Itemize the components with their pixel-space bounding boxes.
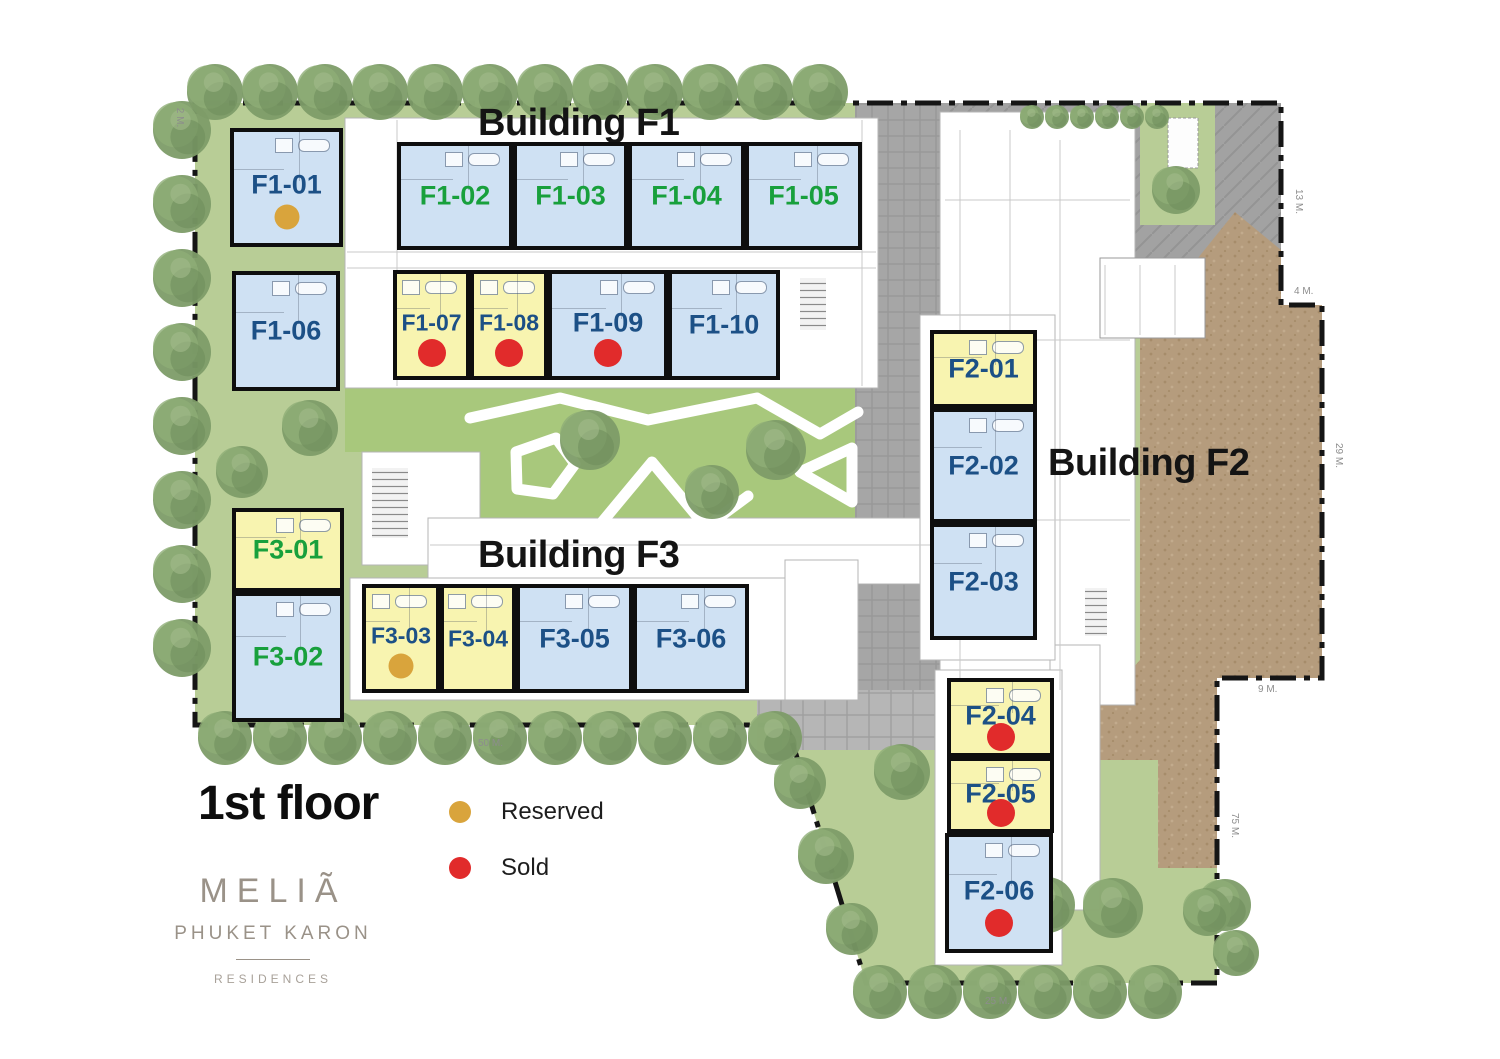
unit-F2-06: F2-06 xyxy=(945,833,1053,953)
reserved-dot-icon xyxy=(449,801,471,823)
bathroom-icon xyxy=(681,594,699,609)
bathroom-icon xyxy=(445,152,463,167)
bathtub-icon xyxy=(700,153,732,166)
bathroom-icon xyxy=(448,594,466,609)
wall-line xyxy=(236,636,286,637)
brand-division: RESIDENCES xyxy=(168,972,378,986)
tree-icon xyxy=(1045,105,1069,129)
tree-icon xyxy=(748,711,802,765)
dimension-label: 50 M. xyxy=(478,738,503,749)
tree-icon xyxy=(153,545,211,603)
bathroom-icon xyxy=(560,152,578,167)
tree-icon xyxy=(153,249,211,307)
tree-icon xyxy=(297,64,353,120)
unit-label: F1-07 xyxy=(401,309,461,336)
tree-icon xyxy=(1120,105,1144,129)
tree-icon xyxy=(282,400,338,456)
reserved-dot-icon xyxy=(389,653,414,678)
unit-label: F2-01 xyxy=(948,354,1019,385)
sold-dot-icon xyxy=(495,339,523,367)
tree-icon xyxy=(1020,105,1044,129)
dimension-label: 75 M. xyxy=(1229,813,1240,838)
bathroom-icon xyxy=(677,152,695,167)
bathroom-icon xyxy=(969,533,987,548)
unit-F2-05: F2-05 xyxy=(947,757,1054,833)
bathtub-icon xyxy=(588,595,620,608)
wall-line xyxy=(934,563,982,564)
bathroom-icon xyxy=(969,418,987,433)
unit-label: F1-06 xyxy=(251,316,322,347)
tree-icon xyxy=(1070,105,1094,129)
wall-line xyxy=(444,621,477,622)
unit-label: F1-09 xyxy=(573,307,644,338)
unit-F2-03: F2-03 xyxy=(930,523,1037,640)
bathroom-icon xyxy=(600,280,618,295)
unit-label: F3-06 xyxy=(656,623,727,654)
dimension-label: 2 M. xyxy=(174,108,185,127)
dimension-label: 25 M. xyxy=(985,996,1010,1007)
tree-icon xyxy=(1095,105,1119,129)
unit-label: F2-03 xyxy=(948,566,1019,597)
unit-F1-10: F1-10 xyxy=(668,270,780,380)
tree-icon xyxy=(682,64,738,120)
bathtub-icon xyxy=(395,595,427,608)
dimension-label: 29 M. xyxy=(1333,443,1344,468)
legend-sold-row: Sold xyxy=(449,854,549,882)
bathtub-icon xyxy=(992,534,1024,547)
tree-icon xyxy=(1018,965,1072,1019)
dimension-label: 13 M. xyxy=(1293,189,1304,214)
tree-icon xyxy=(216,446,268,498)
tree-icon xyxy=(1145,105,1169,129)
bathtub-icon xyxy=(623,281,655,294)
bathroom-icon xyxy=(794,152,812,167)
tree-icon xyxy=(153,619,211,677)
bathtub-icon xyxy=(299,603,331,616)
wall-line xyxy=(934,447,982,448)
wall-line xyxy=(672,308,722,309)
bathtub-icon xyxy=(992,419,1024,432)
tree-icon xyxy=(560,410,620,470)
bathroom-icon xyxy=(712,280,730,295)
unit-label: F3-01 xyxy=(253,535,324,566)
unit-F2-04: F2-04 xyxy=(947,678,1054,757)
reserved-dot-icon xyxy=(274,205,299,230)
unit-label: F1-08 xyxy=(479,309,539,336)
floor-plan-canvas: Building F1 Building F2 Building F3 F1-0… xyxy=(0,0,1500,1059)
unit-label: F2-06 xyxy=(964,875,1035,906)
unit-F1-07: F1-07 xyxy=(393,270,470,380)
unit-label: F1-01 xyxy=(251,170,322,201)
tree-icon xyxy=(638,711,692,765)
tree-icon xyxy=(153,175,211,233)
tree-icon xyxy=(153,323,211,381)
tree-icon xyxy=(352,64,408,120)
bathtub-icon xyxy=(704,595,736,608)
bathtub-icon xyxy=(992,341,1024,354)
tree-icon xyxy=(737,64,793,120)
legend-reserved-label: Reserved xyxy=(501,798,604,826)
building-f2-title: Building F2 xyxy=(1048,442,1249,485)
unit-label: F1-05 xyxy=(768,181,839,212)
unit-label: F1-03 xyxy=(535,181,606,212)
tree-icon xyxy=(407,64,463,120)
unit-label: F2-02 xyxy=(948,450,1019,481)
tree-icon xyxy=(153,397,211,455)
unit-F1-09: F1-09 xyxy=(548,270,668,380)
tree-icon xyxy=(153,471,211,529)
unit-F1-08: F1-08 xyxy=(470,270,548,380)
brand-location: PHUKET KARON xyxy=(168,923,378,945)
dimension-label: 4 M. xyxy=(1294,286,1313,297)
unit-F3-03: F3-03 xyxy=(362,584,440,693)
sold-dot-icon xyxy=(594,339,622,367)
unit-label: F3-02 xyxy=(253,642,324,673)
unit-F2-02: F2-02 xyxy=(930,408,1037,523)
unit-F3-02: F3-02 xyxy=(232,592,344,722)
tree-icon xyxy=(242,64,298,120)
bathtub-icon xyxy=(468,153,500,166)
sold-dot-icon xyxy=(418,339,446,367)
unit-label: F1-04 xyxy=(651,181,722,212)
tree-icon xyxy=(774,757,826,809)
tree-icon xyxy=(583,711,637,765)
tree-icon xyxy=(963,965,1017,1019)
sold-dot-icon xyxy=(987,799,1015,827)
pool-deck xyxy=(1168,118,1198,168)
unit-F3-01: F3-01 xyxy=(232,508,344,592)
tree-icon xyxy=(1128,965,1182,1019)
tree-icon xyxy=(1083,878,1143,938)
bathtub-icon xyxy=(583,153,615,166)
dimension-label: 9 M. xyxy=(1258,684,1277,695)
tree-icon xyxy=(418,711,472,765)
sold-dot-icon xyxy=(987,723,1015,751)
tree-icon xyxy=(746,420,806,480)
brand-logo: MELIÃ PHUKET KARON RESIDENCES xyxy=(168,872,378,986)
bathtub-icon xyxy=(817,153,849,166)
bathroom-icon xyxy=(275,138,293,153)
wall-line xyxy=(236,312,284,313)
tree-icon xyxy=(908,965,962,1019)
tree-icon xyxy=(798,828,854,884)
bathtub-icon xyxy=(299,519,331,532)
logo-divider xyxy=(236,959,310,960)
unit-F3-05: F3-05 xyxy=(516,584,633,693)
brand-name: MELIÃ xyxy=(168,872,378,911)
tree-icon xyxy=(528,711,582,765)
bathtub-icon xyxy=(298,139,330,152)
legend-reserved-row: Reserved xyxy=(449,798,604,826)
tree-icon xyxy=(1213,930,1259,976)
bathtub-icon xyxy=(295,282,327,295)
bathtub-icon xyxy=(1008,844,1040,857)
sold-dot-icon xyxy=(985,909,1013,937)
tree-icon xyxy=(1073,965,1127,1019)
unit-label: F3-04 xyxy=(448,625,508,652)
unit-label: F1-02 xyxy=(420,181,491,212)
unit-F1-03: F1-03 xyxy=(513,142,628,250)
tree-icon xyxy=(685,465,739,519)
floor-title: 1st floor xyxy=(198,776,378,831)
bathtub-icon xyxy=(735,281,767,294)
tree-icon xyxy=(874,744,930,800)
sold-dot-icon xyxy=(449,857,471,879)
tree-icon xyxy=(826,903,878,955)
unit-F1-02: F1-02 xyxy=(397,142,513,250)
bathroom-icon xyxy=(272,281,290,296)
bathroom-icon xyxy=(565,594,583,609)
unit-F2-01: F2-01 xyxy=(930,330,1037,408)
bathtub-icon xyxy=(425,281,457,294)
bathroom-icon xyxy=(276,602,294,617)
unit-F3-04: F3-04 xyxy=(440,584,516,693)
tree-icon xyxy=(792,64,848,120)
building-f1-title: Building F1 xyxy=(478,102,679,145)
building-f3-title: Building F3 xyxy=(478,534,679,577)
bathtub-icon xyxy=(503,281,535,294)
bathroom-icon xyxy=(402,280,420,295)
tree-icon xyxy=(363,711,417,765)
tree-icon xyxy=(1183,888,1231,936)
unit-F1-05: F1-05 xyxy=(745,142,862,250)
tree-icon xyxy=(853,965,907,1019)
tree-icon xyxy=(693,711,747,765)
unit-F3-06: F3-06 xyxy=(633,584,749,693)
unit-F1-06: F1-06 xyxy=(232,271,340,391)
unit-label: F3-05 xyxy=(539,623,610,654)
unit-F1-01: F1-01 xyxy=(230,128,343,247)
bathroom-icon xyxy=(480,280,498,295)
unit-label: F1-10 xyxy=(689,310,760,341)
legend-sold-label: Sold xyxy=(501,854,549,882)
unit-F1-04: F1-04 xyxy=(628,142,745,250)
unit-label: F3-03 xyxy=(371,623,431,650)
tree-icon xyxy=(1152,166,1200,214)
bathroom-icon xyxy=(372,594,390,609)
bathroom-icon xyxy=(276,518,294,533)
bathroom-icon xyxy=(985,843,1003,858)
